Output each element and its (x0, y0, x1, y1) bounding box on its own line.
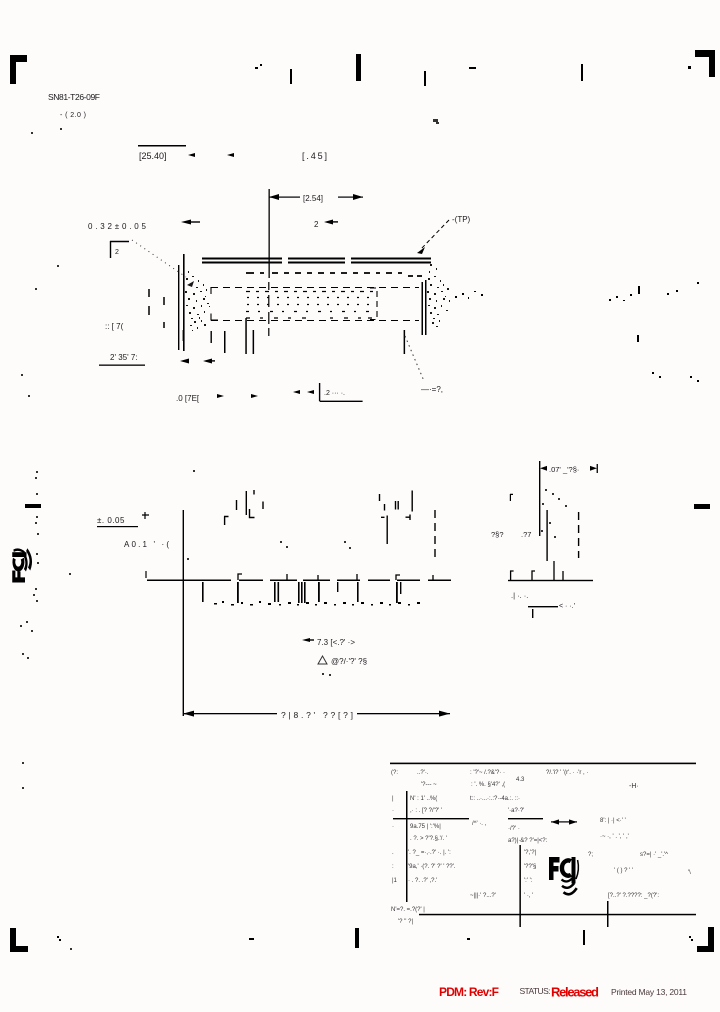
svg-text::: [ 7(: :: [ 7( (105, 322, 124, 331)
svg-text:·/?' ·: ·/?' · (508, 826, 520, 832)
svg-text:?;: ?; (588, 852, 593, 858)
svg-text:,· : . [? ?/'?' ': ,· : . [? ?/'?' ' (410, 808, 442, 814)
svg-text:Printed May 13, 2011: Printed May 13, 2011 (611, 987, 687, 997)
svg-text:. ?. > ?'?.§.'/. ': . ?. > ?'?.§.'/. ' (410, 836, 447, 842)
svg-text:7.3 [<.?' ·>: 7.3 [<.?' ·> (317, 638, 355, 647)
svg-text:~|||·' ?...?': ~|||·' ?...?' (470, 893, 496, 899)
svg-text:.0 [7E[: .0 [7E[ (176, 394, 200, 403)
svg-text:2: 2 (314, 220, 319, 229)
svg-text:9a.75 | ':'%|: 9a.75 | ':'%| (410, 824, 441, 830)
svg-text:·: · (392, 824, 394, 830)
svg-text:N'=?. =.?(?' |: N'=?. =.?(?' | (391, 907, 425, 913)
svg-text:·~ ·, ' . ', ' ,': ·~ ·, ' . ', ' ,' (600, 834, 629, 840)
svg-text:?/.'i? ' '(r'. · ·'r , ·: ?/.'i? ' '(r'. · ·'r , · (546, 770, 588, 776)
svg-text:STATUS:: STATUS: (520, 986, 551, 996)
svg-text:s?=| ·' _'.'^: s?=| ·' _'.'^ (640, 852, 668, 858)
svg-text:'. ?_ =·,·.?' ·. |. ':: '. ?_ =·,·.?' ·. |. ': (408, 850, 451, 856)
svg-text:: '?'~ /.?&'?· ·: : '?'~ /.?&'?· · (470, 770, 505, 776)
svg-text:'?,'?|: '?,'?| (524, 850, 537, 856)
svg-text:'??'§: '??'§ (524, 864, 536, 870)
svg-text:.| ·. ·.: .| ·. ·. (511, 591, 528, 600)
svg-text:< · ·.': < · ·.' (559, 603, 575, 610)
svg-text:.07' _'?§·: .07' _'?§· (549, 465, 579, 474)
svg-text:SN81-T26-09F: SN81-T26-09F (48, 92, 100, 102)
svg-text:':' ':: ':' ': (524, 878, 533, 884)
svg-text:/^' ·. ,: /^' ·. , (472, 821, 487, 827)
svg-text:t:: ..·...·:.:?·-4a.:. ::·: t:: ..·...·:.:?·-4a.:. ::· (470, 796, 520, 802)
svg-text:'\: '\ (688, 870, 691, 876)
svg-text:.2 ··· ·.: .2 ··· ·. (324, 390, 345, 397)
svg-text:A0.1 ' ·(: A0.1 ' ·( (124, 540, 169, 549)
svg-text::: : (392, 864, 394, 870)
svg-text:PDM: Rev:F: PDM: Rev:F (439, 985, 499, 999)
svg-text:@?/·'?' ?§: @?/·'?' ?§ (331, 657, 367, 666)
svg-text:?§?: ?§? (491, 530, 504, 539)
svg-text:[25.40]: [25.40] (139, 151, 167, 161)
svg-text:2: 2 (115, 249, 119, 256)
svg-text:'? '' ?|: '? '' ?| (398, 919, 413, 925)
svg-text:4.3: 4.3 (516, 777, 525, 783)
svg-text:' ( ) ? ' ': ' ( ) ? ' ' (614, 868, 633, 874)
svg-text:- ( 2.0 ): - ( 2.0 ) (60, 112, 86, 119)
svg-text:|: | (392, 796, 394, 802)
svg-text:[2.54]: [2.54] (303, 194, 323, 203)
svg-text:.?7: .?7 (521, 530, 531, 539)
svg-text:(?:: (?: (391, 770, 398, 776)
svg-text:'?--- ~: '?--- ~ (421, 782, 437, 788)
svg-text:2' 35' 7:: 2' 35' 7: (110, 353, 138, 362)
svg-text:: '. %. §'4?' ,(: : '. %. §'4?' ,( (471, 782, 505, 788)
svg-text:·: · (392, 808, 394, 814)
svg-text:-(TP): -(TP) (452, 215, 471, 224)
svg-text:|1: |1 (392, 878, 398, 884)
svg-text:—·=?,: —·=?, (421, 385, 443, 394)
svg-text:0.32±0.05: 0.32±0.05 (88, 222, 147, 231)
svg-text:.: . (392, 850, 394, 856)
svg-text:[.45]: [.45] (302, 151, 327, 161)
svg-text:N' : 1' ..%(: N' : 1' ..%( (410, 796, 437, 802)
svg-text:· . ?. .?' ,?.': · . ?. .?' ,?.' (408, 878, 437, 884)
svg-text:-H·: -H· (629, 783, 639, 790)
svg-text:a?)|·&? ?'=|<?:: a?)|·&? ?'=|<?: (508, 838, 548, 844)
svg-text:' ·, ': ' ·, ' (524, 893, 533, 899)
svg-text:8': | ·| <·' ': 8': | ·| <·' ' (600, 818, 626, 824)
svg-text:'·a?·?': '·a?·?' (508, 808, 524, 814)
svg-text:±. 0.05: ±. 0.05 (97, 516, 125, 525)
svg-text:Released: Released (551, 985, 599, 1000)
svg-text:..?'·.: ..?'·. (417, 770, 429, 776)
svg-text:[?..?' ?.????: _?(?':: [?..?' ?.????: _?(?': (608, 893, 659, 899)
svg-text:'9a,' ·(?. ?' ?' ' ??'.: '9a,' ·(?. ?' ?' ' ??'. (408, 864, 456, 870)
